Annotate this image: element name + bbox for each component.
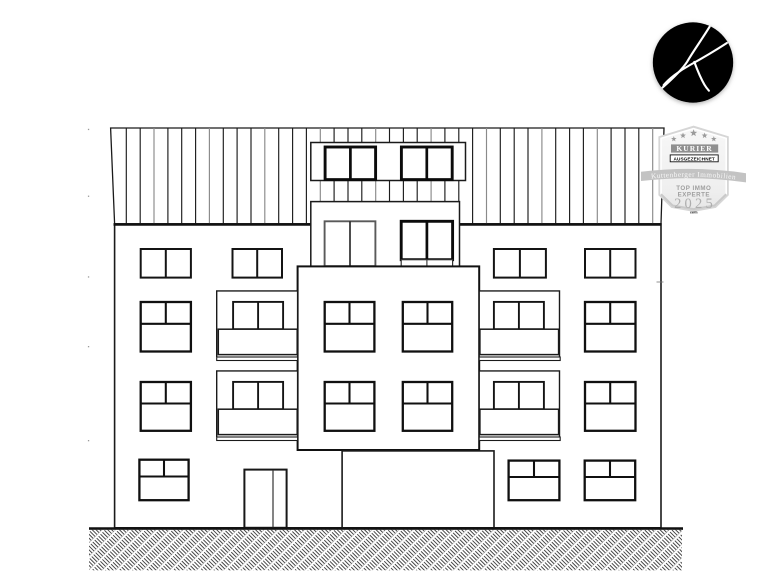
svg-text:2025: 2025: [674, 196, 716, 212]
svg-text:KURIER: KURIER: [676, 144, 712, 153]
svg-text:ewm: ewm: [690, 211, 698, 215]
svg-text:AUSGEZEICHNET: AUSGEZEICHNET: [673, 156, 714, 161]
